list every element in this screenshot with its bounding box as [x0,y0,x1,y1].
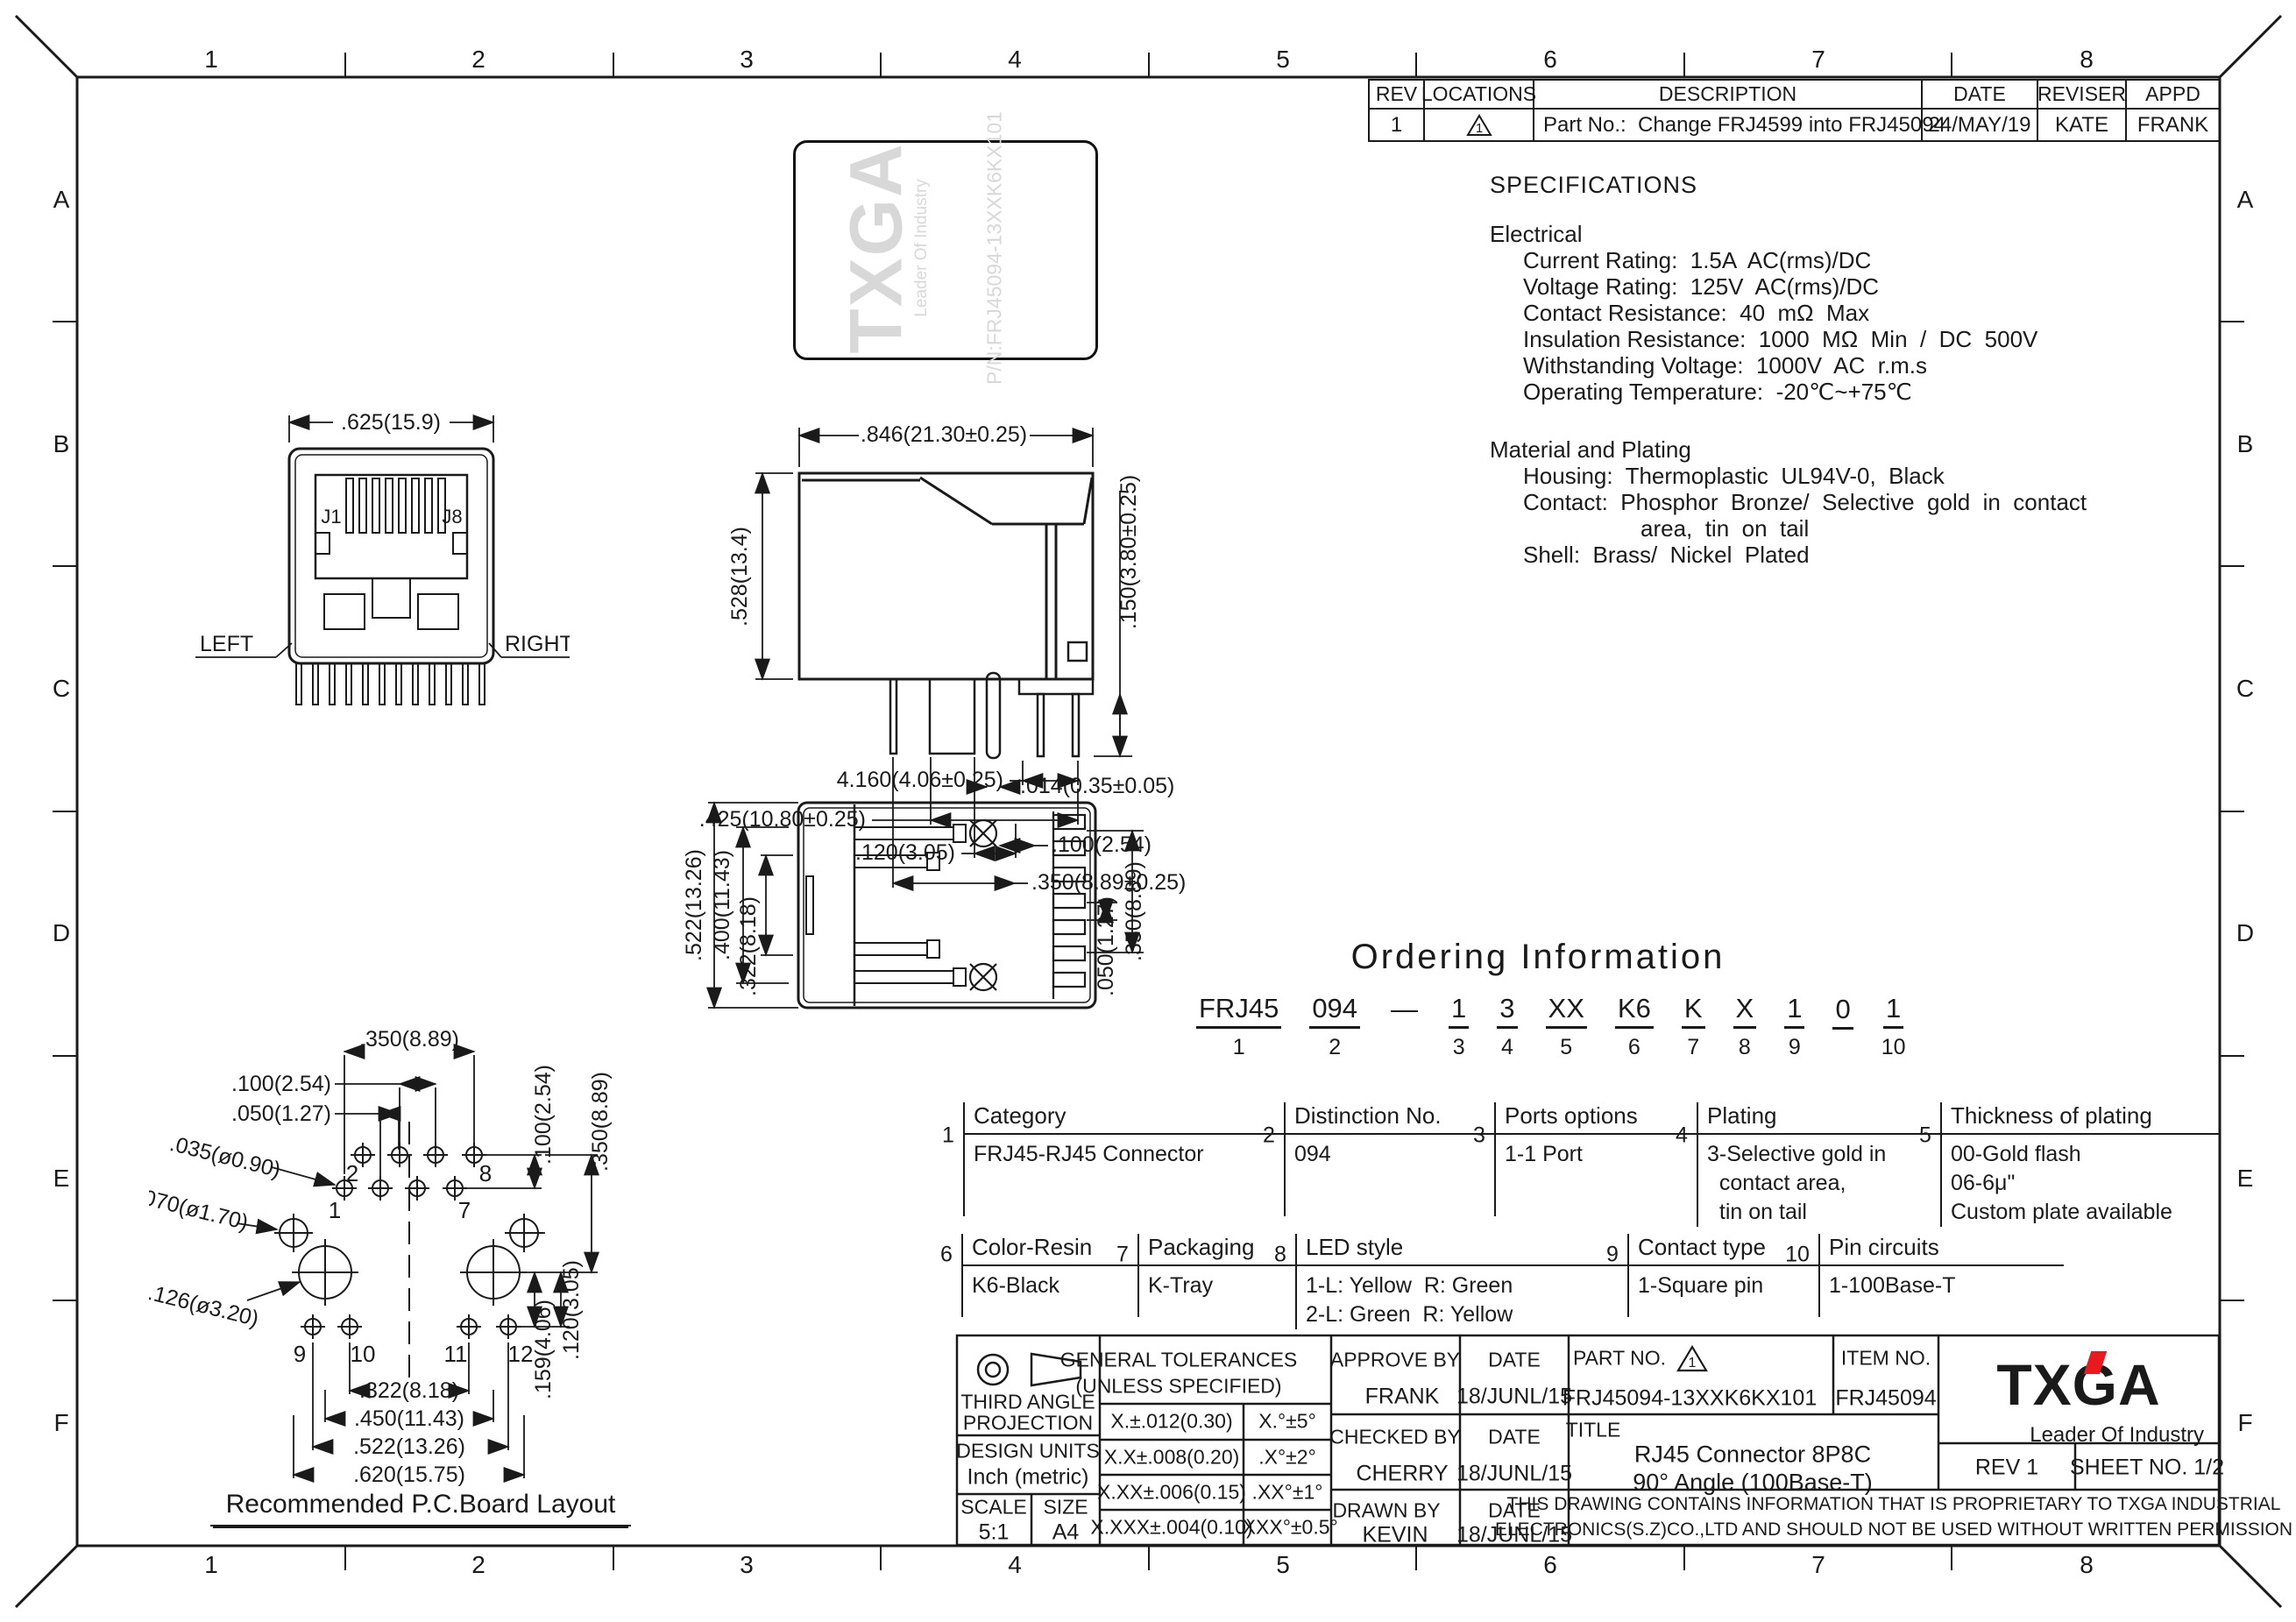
grid-col-label: 1 [204,46,218,74]
option-title: Thickness of plating [1942,1102,2221,1135]
option-title: Color-Resin [963,1234,1139,1266]
option-box-led: LED style 1-L: Yellow R: Green 2-L: Gree… [1295,1234,1630,1329]
projection-label: PROJECTION [963,1412,1093,1435]
side-pin-dim: .150(3.80±0.25) [1116,475,1141,629]
size-value: A4 [1052,1520,1080,1546]
proprietary-notice: ELECTRONICS(S.Z)CO.,LTD AND SHOULD NOT B… [1495,1519,2292,1541]
description-header: DESCRIPTION [1534,81,1923,110]
tol-angular: .XXX°±0.5° [1237,1516,1337,1540]
grid-row-label: B [53,430,70,458]
option-title: Ports options [1496,1102,1698,1135]
spec-line: Contact Resistance: 40 mΩ Max [1523,300,1869,327]
pn-segment-text: 1 [1784,993,1804,1029]
grid-col-label: 7 [1811,46,1825,74]
grid-row-label: D [53,919,70,947]
grid-row-label: D [2236,919,2254,947]
drawn-label: DRAWN BY [1332,1499,1440,1523]
option-content: FRJ45-RJ45 Connector [974,1140,1286,1169]
pn-segment-text: 094 [1309,993,1360,1029]
approve-date: 18/JUNL/15 [1456,1385,1572,1410]
design-units-value: Inch (metric) [967,1465,1089,1491]
grid-row-label: E [2237,1165,2254,1193]
pn-segment: 34 [1497,993,1517,1060]
title-label: TITLE [1566,1419,1621,1442]
pn-segment-text: FRJ45 [1196,993,1281,1029]
checked-label: CHECKED BY [1329,1426,1461,1449]
tol-linear: X.XX±.006(0.15) [1097,1481,1246,1505]
pn-segment: K66 [1615,993,1654,1060]
pcb-pin-11: 11 [444,1341,468,1367]
option-num: 1 [942,1123,954,1149]
pn-segment: XX5 [1546,993,1587,1060]
option-box-color: Color-Resin K6-Black [961,1234,1139,1317]
locations-header: LOCATIONS [1425,81,1534,110]
checked-date: 18/JUNL/15 [1456,1462,1572,1487]
option-content: 1-1 Port [1505,1140,1698,1169]
txga-tagline: Leader Of Industry [2016,1423,2204,1448]
checked-name: CHERRY [1356,1462,1448,1487]
bottom-dim-e: .350(8.89) [1122,861,1146,961]
grid-col-label: 4 [1008,1551,1022,1579]
date-label: DATE [1488,1426,1541,1449]
pn-segment: — [1388,994,1421,1060]
option-title: Distinction No. [1286,1102,1496,1135]
rev-value: 1 [1370,110,1425,140]
front-view-drawing: .625(15.9) J1 J8 LEFT RIGHT [193,403,570,736]
pcb-pin-2: 2 [346,1160,358,1186]
option-title: Plating [1698,1102,1942,1135]
pcb-pin-9: 9 [294,1341,306,1367]
pn-segment-text: 3 [1497,993,1517,1029]
option-num: 8 [1274,1243,1286,1268]
option-num: 5 [1919,1123,1931,1149]
drawing-sheet: 1 2 3 4 5 6 7 8 1 2 3 4 5 6 7 8 A B C D … [0,0,2296,1622]
watermark-part-number: P/N:FRJ45094-13XXK6KX101 [983,111,1007,385]
item-no-value: FRJ45094 [1835,1386,1936,1412]
date-label: DATE [1488,1349,1541,1372]
watermark-brand: TXGA [834,142,919,353]
tol-angular: .X°±2° [1258,1446,1316,1470]
tolerances-title: GENERAL TOLERANCES [1060,1349,1298,1372]
option-num: 9 [1606,1243,1619,1268]
option-content: K6-Black [972,1271,1139,1300]
tol-angular: X.°±5° [1258,1410,1316,1434]
material-line: Shell: Brass/ Nickel Plated [1523,542,1810,569]
pcb-dim-top: .350(8.89) [359,1027,459,1052]
grid-col-label: 8 [2080,1551,2094,1579]
bottom-dim-d: .050(1.27) [1094,896,1118,996]
pn-segment: 0942 [1309,993,1360,1060]
tolerances-subtitle: (UNLESS SPECIFIED) [1075,1375,1281,1399]
pcb-pin-1: 1 [329,1197,341,1223]
pn-segment-text: — [1388,994,1421,1030]
pcb-dim-r3: .120(3.05) [559,1260,584,1360]
grid-col-label: 8 [2080,46,2094,74]
pcb-dim-b1: .322(8.18) [359,1378,459,1403]
pcb-pin-8: 8 [479,1160,492,1186]
side-height-dim: .528(13.4) [727,527,752,627]
option-content: 00-Gold flash 06-6μ" Custom plate availa… [1951,1140,2221,1227]
option-num: 3 [1473,1123,1485,1149]
tol-linear: X.X±.008(0.20) [1104,1446,1240,1470]
option-content: K-Tray [1148,1271,1297,1300]
pn-segment-num: 1 [1233,1035,1245,1060]
pn-segment-text: X [1733,993,1757,1029]
pcb-layout-drawing: .350(8.89) .100(2.54) .050(1.27) .035(ø0… [149,1016,692,1494]
spec-line: Insulation Resistance: 1000 MΩ Min / DC … [1523,326,2037,353]
scale-label: SCALE [960,1496,1026,1519]
grid-col-label: 6 [1543,46,1557,74]
pcb-pin-7: 7 [458,1197,471,1223]
txga-logo: TXGA [1996,1351,2160,1418]
grid-col-label: 1 [204,1551,218,1579]
option-num: 6 [940,1243,953,1268]
right-label: RIGHT [505,632,570,656]
pn-segment-text: XX [1546,993,1587,1029]
option-num: 4 [1676,1123,1688,1149]
part-no-triangle-icon: 1 [1676,1344,1709,1374]
pcb-dim-pitch: .100(2.54) [231,1072,331,1096]
pcb-layout-title: Recommended P.C.Board Layout [210,1490,631,1526]
pn-segment: 13 [1449,993,1469,1060]
option-content: 1-Square pin [1638,1271,1820,1300]
side-width-dim: .846(21.30±0.25) [861,422,1027,447]
sheet-number: SHEET NO. 1/2 [2070,1456,2224,1481]
option-num: 2 [1263,1123,1275,1149]
pn-segment-num: 2 [1329,1035,1341,1060]
grid-col-label: 6 [1543,1551,1557,1579]
grid-row-label: E [53,1165,70,1193]
grid-row-label: C [2236,675,2254,703]
pcb-pin-10: 10 [351,1341,376,1367]
option-num: 10 [1785,1243,1810,1268]
front-width-dim: .625(15.9) [341,410,441,435]
revision-mark: 1 [1475,121,1482,136]
grid-col-label: 3 [740,1551,754,1579]
option-title: Category [965,1102,1286,1135]
material-line: Contact: Phosphor Bronze/ Selective gold… [1523,489,2087,516]
rev-reviser: KATE [2038,110,2127,140]
pcb-dim-hole-small: .035(ø0.90) [167,1131,283,1182]
option-content: 094 [1294,1140,1496,1169]
pn-segment: X8 [1733,993,1757,1060]
pcb-dim-b4: .620(15.75) [353,1463,465,1487]
material-heading: Material and Plating [1490,436,1691,464]
option-num: 7 [1116,1243,1129,1268]
pin-j8-label: J8 [442,506,462,528]
revision-table: REV LOCATIONS DESCRIPTION DATE REVISER A… [1368,79,2221,142]
pn-segment-num: 6 [1628,1035,1641,1060]
option-box-plating: Plating 3-Selective gold in contact area… [1697,1102,1942,1227]
material-line: area, tin on tail [1641,515,1809,542]
material-line: Housing: Thermoplastic UL94V-0, Black [1523,463,1945,490]
design-units-label: DESIGN UNITS [956,1440,1100,1463]
grid-col-label: 4 [1008,46,1022,74]
grid-col-label: 3 [740,46,754,74]
grid-row-label: F [2237,1409,2252,1437]
spec-line: Withstanding Voltage: 1000V AC r.m.s [1523,352,1927,379]
part-no-mark: 1 [1689,1356,1697,1371]
option-box-pincircuits: Pin circuits 1-100Base-T [1818,1234,2064,1317]
pn-segment-num: 7 [1687,1035,1699,1060]
option-title: Packaging [1139,1234,1297,1266]
bottom-view-drawing: .522(13.26) .400(11.43) .322(8.18) .050(… [675,771,1166,1034]
grid-row-label: A [53,186,70,214]
pin-j1-label: J1 [321,506,341,528]
left-label: LEFT [200,632,253,656]
part-no-value: FRJ45094-13XXK6KX101 [1563,1386,1817,1412]
option-title: LED style [1297,1234,1630,1266]
grid-col-label: 5 [1276,46,1290,74]
item-no-label: ITEM NO. [1841,1347,1931,1371]
rev-appd: FRANK [2127,110,2219,140]
pcb-dim-half: .050(1.27) [231,1101,331,1126]
pn-segment-num: 5 [1560,1035,1572,1060]
option-box-packaging: Packaging K-Tray [1137,1234,1297,1317]
grid-row-label: F [53,1409,68,1437]
spec-line: Current Rating: 1.5A AC(rms)/DC [1523,247,1871,274]
pn-segment: FRJ451 [1196,993,1281,1060]
tol-angular: .XX°±1° [1252,1481,1323,1505]
rev-description: Part No.: Change FRJ4599 into FRJ45094 [1534,110,1923,140]
bottom-dim-a: .522(13.26) [682,849,706,961]
pcb-dim-r1: .100(2.54) [531,1065,556,1165]
electrical-heading: Electrical [1490,221,1582,248]
option-content: 1-100Base-T [1829,1271,2064,1300]
pcb-dim-hole-large: .126(ø3.20) [149,1280,261,1331]
pcb-dim-r4: .159(4.06) [531,1300,556,1399]
option-content: 1-L: Yellow R: Green 2-L: Green R: Yello… [1306,1271,1630,1329]
pcb-pin-12: 12 [508,1341,534,1367]
spec-line: Voltage Rating: 125V AC(rms)/DC [1523,273,1879,301]
pn-segment: K7 [1682,993,1705,1060]
drawing-title-line1: RJ45 Connector 8P8C [1634,1441,1871,1469]
grid-row-label: C [53,675,70,703]
grid-col-label: 5 [1276,1551,1290,1579]
option-title: Pin circuits [1820,1234,2064,1266]
date-header: DATE [1923,81,2038,110]
grid-row-label: B [2237,430,2254,458]
drawn-name: KEVIN [1362,1523,1428,1548]
pn-segment-text: 1 [1449,993,1469,1029]
approve-name: FRANK [1365,1385,1440,1410]
specifications-title: SPECIFICATIONS [1490,172,1697,199]
pn-segment: 0 [1832,994,1853,1060]
pcb-dim-hole-medium: .070(ø1.70) [149,1184,251,1235]
pn-segment-num: 4 [1501,1035,1513,1060]
size-label: SIZE [1043,1496,1088,1519]
scale-value: 5:1 [979,1520,1010,1546]
pn-segment: 110 [1881,993,1906,1060]
option-box-distinction: Distinction No. 094 [1284,1102,1496,1216]
pn-segment-text: 1 [1883,993,1903,1029]
watermark-tagline: Leader Of Industry [912,179,932,316]
tol-linear: X.XXX±.004(0.10) [1090,1516,1252,1540]
spec-line: Operating Temperature: -20℃~+75℃ [1523,379,1912,406]
tol-linear: X.±.012(0.30) [1110,1410,1232,1434]
bottom-dim-b: .400(11.43) [710,850,734,960]
pn-segment-text: K6 [1615,993,1654,1029]
pcb-dim-b2: .450(11.43) [354,1406,464,1431]
option-content: 3-Selective gold in contact area, tin on… [1707,1140,1942,1227]
rev-badge: REV 1 [1975,1456,2038,1481]
pn-segment-text: K [1682,993,1705,1029]
pcb-dim-r2: .350(8.89) [588,1072,613,1172]
pn-segment-num: 8 [1739,1035,1751,1060]
grid-col-label: 2 [471,1551,485,1579]
grid-col-label: 7 [1811,1551,1825,1579]
ordering-title: Ordering Information [1341,938,1735,977]
pn-segment: 19 [1784,993,1804,1060]
part-no-label: PART NO. [1573,1347,1666,1371]
pcb-dim-b3: .522(13.26) [353,1434,465,1459]
part-number-breakdown: FRJ451 0942 — 13 34 XX5 K66 K7 X8 19 0 1… [1196,993,1906,1060]
rev-header: REV [1370,81,1425,110]
option-box-category: Category FRJ45-RJ45 Connector [963,1102,1286,1216]
pn-segment-num: 9 [1789,1035,1801,1060]
pn-segment-num: 3 [1453,1035,1465,1060]
pn-segment-num: 10 [1881,1035,1906,1060]
drawing-title-line2: 90° Angle (100Base-T) [1633,1470,1872,1497]
option-box-ports: Ports options 1-1 Port [1494,1102,1698,1216]
grid-row-label: A [2237,186,2254,214]
rev-date: 24/MAY/19 [1923,110,2038,140]
pn-segment-text: 0 [1832,994,1853,1030]
bottom-dim-c: .322(8.18) [736,896,761,996]
appd-header: APPD [2127,81,2219,110]
approve-label: APPROVE BY [1330,1349,1460,1372]
option-box-thickness: Thickness of plating 00-Gold flash 06-6μ… [1940,1102,2221,1227]
grid-col-label: 2 [471,46,485,74]
proprietary-notice: THIS DRAWING CONTAINS INFORMATION THAT I… [1507,1494,2281,1515]
revision-triangle-icon: 1 [1425,110,1534,140]
reviser-header: REVISER [2038,81,2127,110]
